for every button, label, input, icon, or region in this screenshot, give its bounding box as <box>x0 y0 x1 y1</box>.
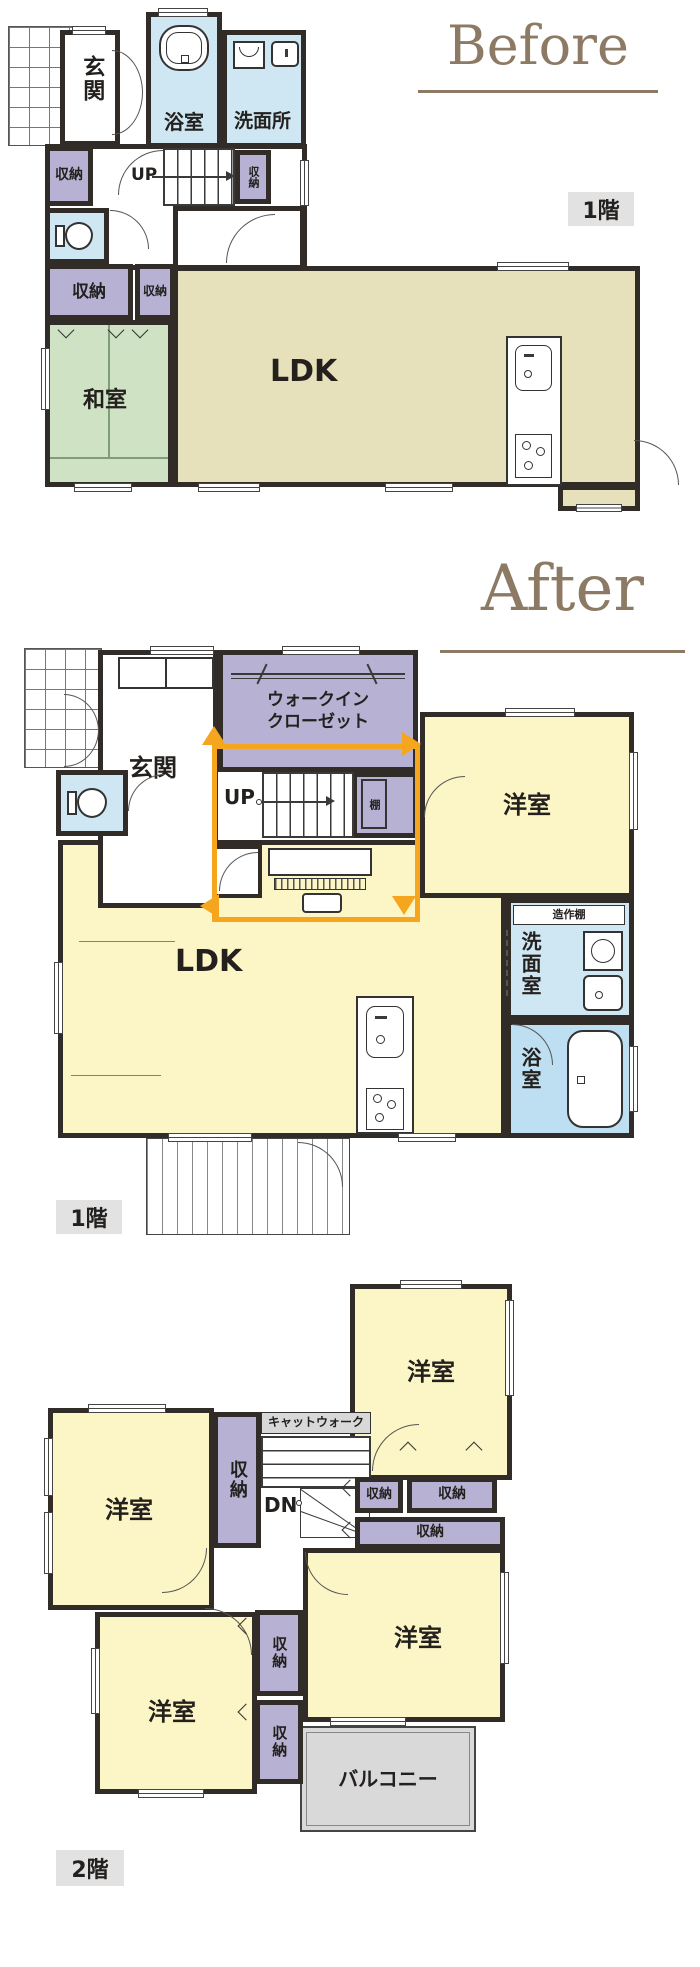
window <box>44 1438 53 1496</box>
room-label: ウォークイン <box>223 691 413 710</box>
closet-label: 収納 <box>412 1482 492 1508</box>
window <box>74 483 132 492</box>
room-washroom-before: 洗面所 <box>222 30 306 148</box>
open-boundary <box>506 930 508 996</box>
room-label: LDK <box>175 945 242 978</box>
closet-center-2f: 収納 <box>213 1412 261 1548</box>
shoe-cabinet <box>118 657 214 689</box>
after-title: After <box>440 552 685 653</box>
window <box>400 1280 462 1289</box>
closet-label: 収納 <box>260 1705 298 1779</box>
room-label: LDK <box>270 355 337 388</box>
stairs-up-arrow-icon <box>152 176 228 178</box>
window <box>505 1300 514 1396</box>
balcony: バルコニー <box>300 1726 476 1832</box>
washbasin-icon <box>583 975 623 1011</box>
window <box>576 504 622 512</box>
flow-loop-arrows-icon <box>212 744 420 922</box>
kitchen-counter-before <box>506 336 562 486</box>
room-label: クローゼット <box>223 713 413 732</box>
window <box>198 483 260 492</box>
window <box>54 962 63 1034</box>
balcony-label: バルコニー <box>338 1768 438 1790</box>
builtin-shelf: 造作棚 <box>513 905 625 925</box>
closet-m1-2f: 収納 <box>255 1610 303 1696</box>
window <box>385 483 453 492</box>
window <box>300 160 309 206</box>
stairs-up-label: UP <box>131 166 157 185</box>
window <box>629 752 638 830</box>
closet-label: 収納 <box>50 269 128 315</box>
window <box>72 26 106 35</box>
kitchen-sink-icon <box>515 345 552 391</box>
room-ldk-before: LDK <box>173 266 640 487</box>
window <box>330 1717 406 1726</box>
closet-r2-2f: 収納 <box>407 1477 497 1513</box>
room-bath-before: 浴室 <box>146 12 222 148</box>
closet-r-wide-2f: 収納 <box>355 1517 505 1549</box>
before-title: Before <box>418 14 658 93</box>
room-label: 浴室 <box>164 111 204 133</box>
closet-label: 収納 <box>50 151 88 201</box>
room-genkan-before: 玄関 <box>60 30 120 146</box>
floorplan-screenshot: Before 1階 LDK 和室 浴室 洗面所 玄関 収納 UP <box>0 0 700 1967</box>
room-label: 洗面所 <box>234 111 291 132</box>
room-label: 洋室 <box>394 1625 442 1651</box>
closet-label: 収納 <box>360 1522 500 1544</box>
kitchen-island <box>356 996 414 1134</box>
room-label: 玄関 <box>79 55 103 103</box>
closet-m2-2f: 収納 <box>255 1700 303 1784</box>
stove-icon <box>366 1088 404 1130</box>
room-youshitsu-2f-ne: 洋室 <box>350 1284 512 1480</box>
room-label: 洗面室 <box>519 931 541 997</box>
toilet-bowl-icon <box>77 788 107 818</box>
window <box>41 348 50 410</box>
toilet-icon <box>55 225 65 247</box>
closet-label: 収納 <box>218 1417 256 1543</box>
window <box>282 646 360 655</box>
door-arc <box>112 92 143 135</box>
catwalk: キャットウォーク <box>261 1412 371 1434</box>
arrowhead-icon <box>226 171 235 181</box>
window <box>158 8 208 17</box>
room-senmen-after: 造作棚 洗面室 <box>506 898 634 1020</box>
washing-machine-icon <box>583 931 623 971</box>
closet-stairs-before: 収納 <box>235 150 271 204</box>
window <box>88 1404 166 1413</box>
flow-arrow-down-icon <box>392 896 416 915</box>
room-label: 洋室 <box>503 792 551 818</box>
closet-label: 収納 <box>140 269 170 315</box>
window <box>398 1133 456 1142</box>
window <box>497 262 569 271</box>
room-label: 洋室 <box>407 1359 455 1385</box>
closet-west-before: 収納 <box>45 264 133 320</box>
closet-label: 収納 <box>260 1615 298 1691</box>
room-label: 洋室 <box>148 1699 196 1725</box>
toilet-icon <box>67 791 77 815</box>
kitchen-sink-icon <box>366 1006 404 1058</box>
toilet-bowl-icon <box>65 222 93 250</box>
window <box>138 1789 204 1798</box>
bathtub-icon <box>159 25 209 71</box>
window <box>629 1046 638 1112</box>
room-label: 和室 <box>83 389 127 413</box>
door-arc <box>634 440 679 485</box>
toilet-room-before <box>45 208 109 264</box>
stove-icon <box>515 434 552 478</box>
after-floor-label: 1階 <box>56 1200 122 1234</box>
washbasin-icon <box>271 41 299 67</box>
flow-arrow-right-icon <box>402 732 421 756</box>
washing-machine-icon <box>233 41 265 69</box>
catwalk-label: キャットウォーク <box>268 1416 364 1429</box>
closet-label: 収納 <box>360 1482 398 1508</box>
door-arc <box>112 50 143 93</box>
window <box>500 1572 509 1664</box>
room-washitsu-before: 和室 <box>45 320 173 487</box>
flow-arrow-up-icon <box>202 726 226 745</box>
second-floor-label: 2階 <box>56 1850 124 1886</box>
window <box>150 646 214 655</box>
room-label: 洋室 <box>105 1497 153 1523</box>
window <box>168 1133 252 1142</box>
window <box>505 708 575 717</box>
stairs-down-label: DN <box>264 1494 297 1516</box>
closet-hall-before: 収納 <box>45 146 93 206</box>
window <box>44 1512 53 1574</box>
closet-label: 収納 <box>240 155 266 199</box>
closet-small-before: 収納 <box>135 264 175 320</box>
bathtub-icon <box>567 1030 623 1128</box>
flow-arrow-left-icon <box>200 894 219 918</box>
toilet-room-after <box>56 770 128 836</box>
closet-r1-2f: 収納 <box>355 1477 403 1513</box>
window <box>91 1648 100 1714</box>
builtin-shelf-label: 造作棚 <box>553 909 586 921</box>
before-floor-label: 1階 <box>568 192 634 226</box>
